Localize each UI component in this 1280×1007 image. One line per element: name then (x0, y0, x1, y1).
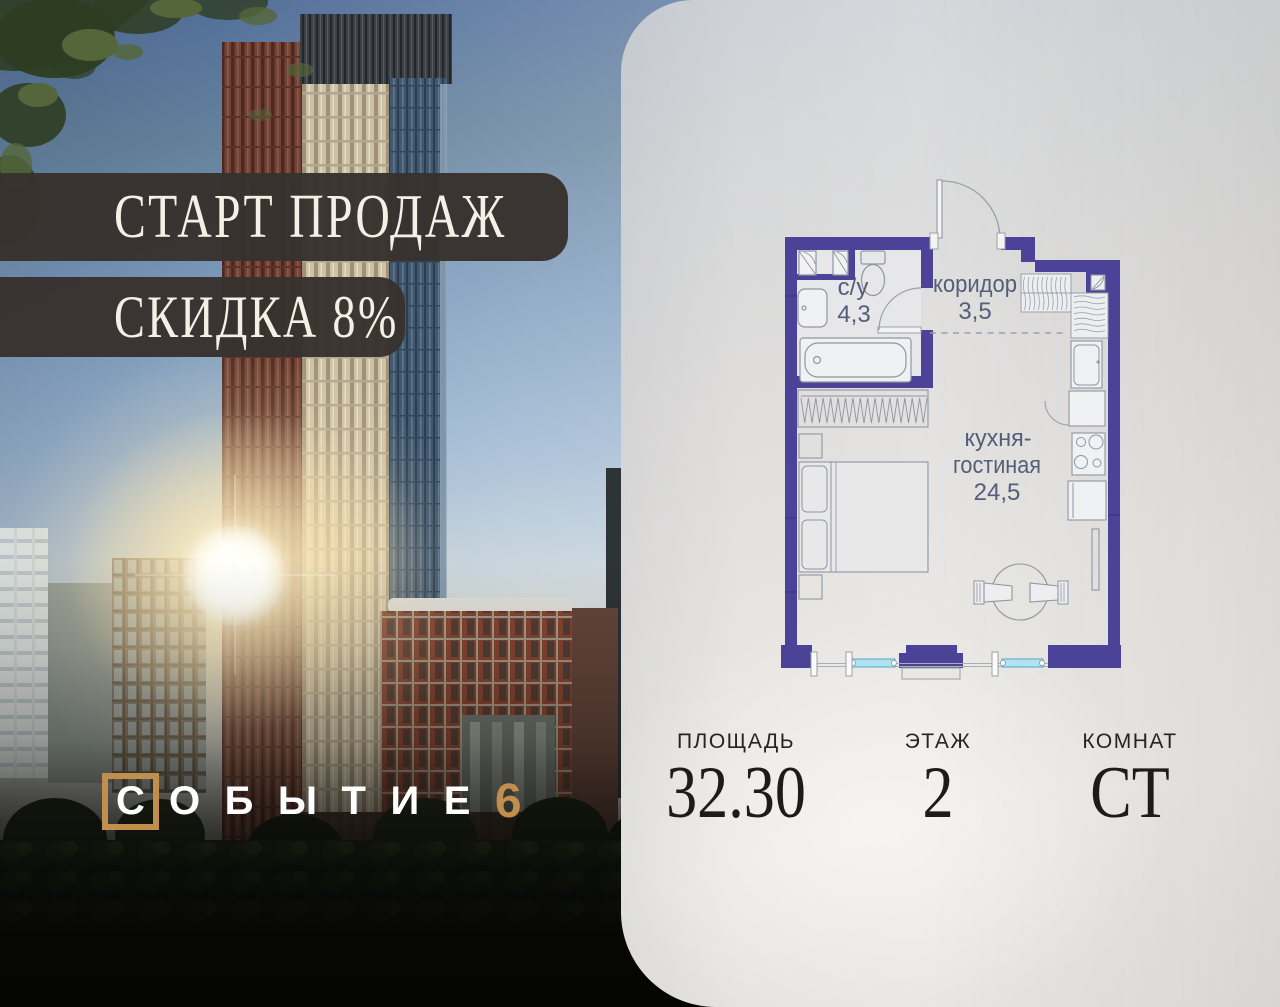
svg-text:гостиная: гостиная (953, 452, 1041, 479)
svg-text:кухня-: кухня- (965, 425, 1032, 452)
svg-text:коридор: коридор (933, 271, 1017, 298)
svg-text:с/у: с/у (838, 274, 869, 301)
svg-text:24,5: 24,5 (974, 479, 1021, 506)
svg-text:4,3: 4,3 (837, 301, 870, 328)
svg-text:3,5: 3,5 (958, 298, 991, 325)
